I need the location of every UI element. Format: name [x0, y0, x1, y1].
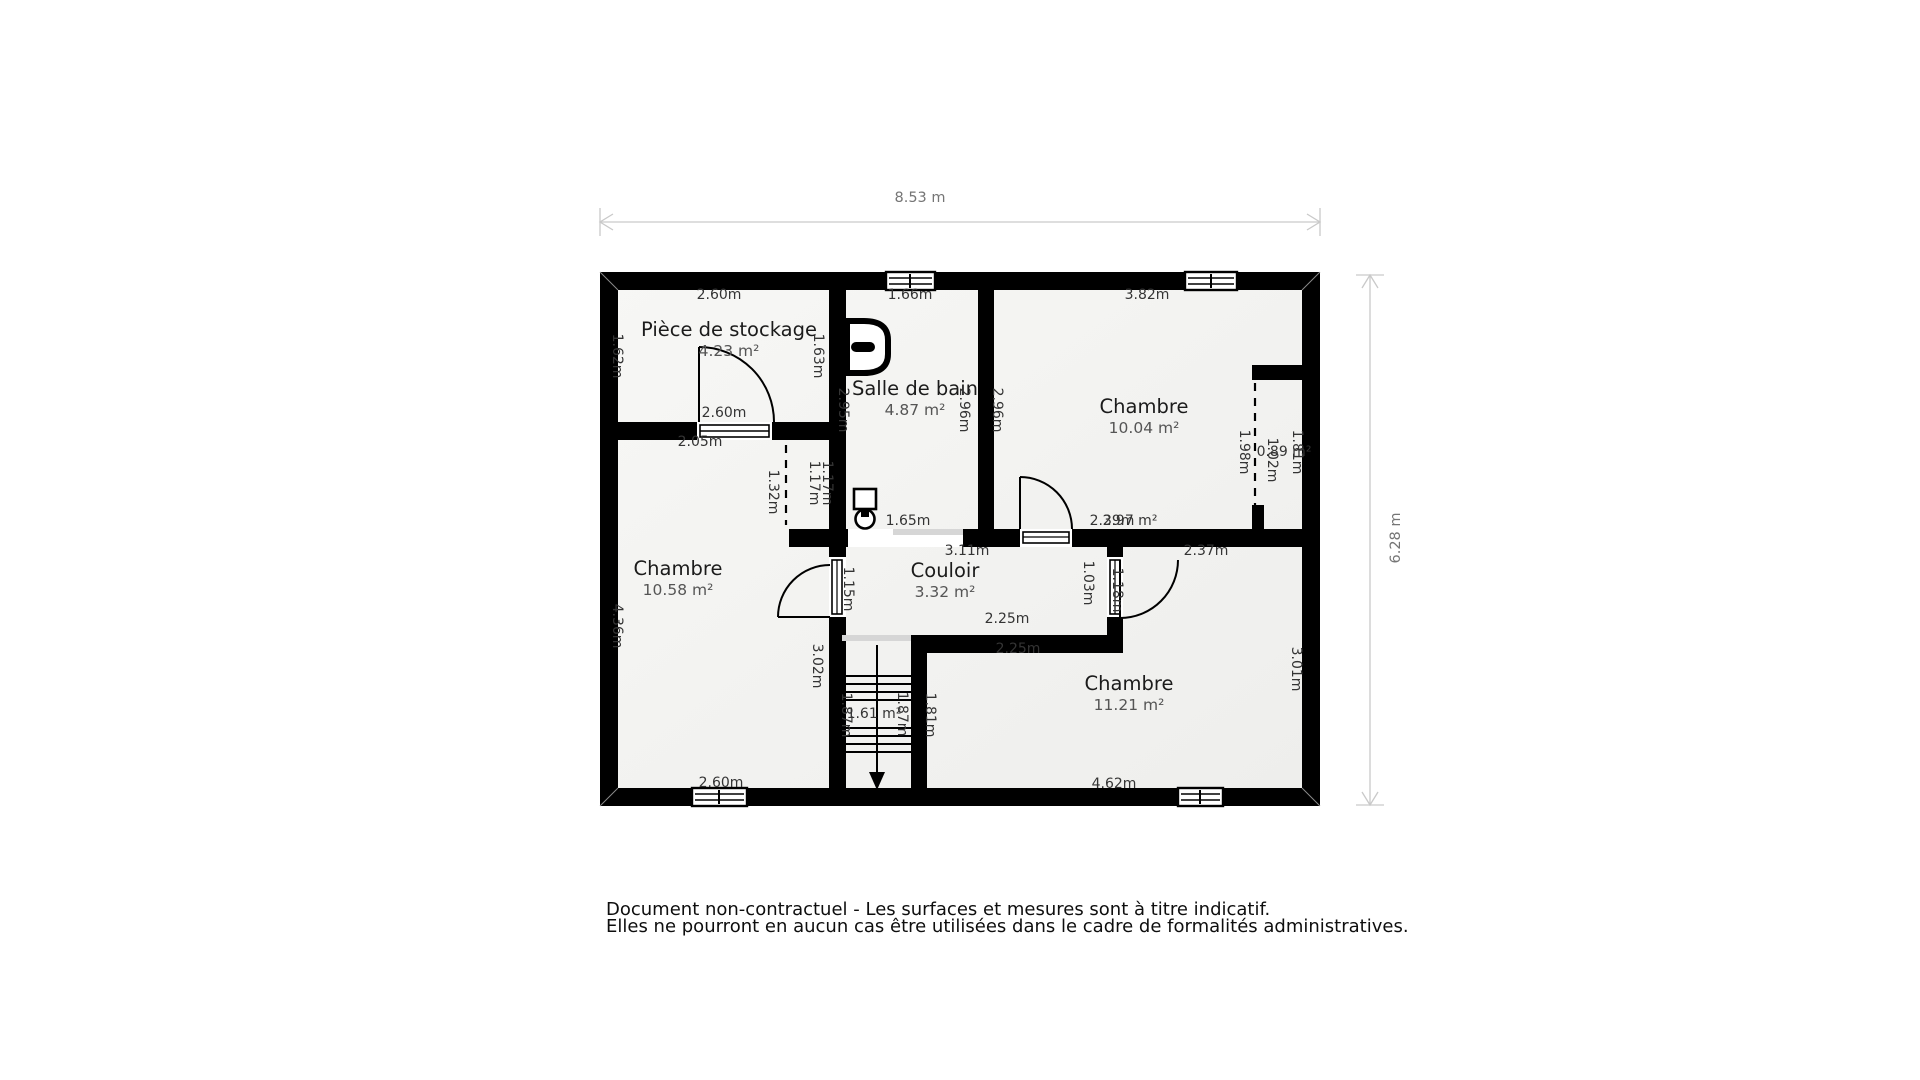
dimension-label: 1.15m: [840, 567, 856, 612]
dimension-label: 1.03m: [1080, 561, 1096, 606]
dimension-line-right: [1356, 275, 1384, 805]
dimension-label: 1.65m: [886, 513, 931, 529]
dimension-label: 2.25m: [985, 611, 1030, 627]
disclaimer: Document non-contractuel - Les surfaces …: [606, 901, 1409, 935]
toilet-icon: [847, 321, 888, 373]
room-area: 10.04 m²: [1100, 420, 1189, 439]
dimension-label: 3.02m: [809, 644, 825, 689]
room-name: Chambre: [634, 557, 723, 581]
room-area: 4.23 m²: [641, 343, 817, 362]
dimension-label: 2.60m: [697, 287, 742, 303]
dimension-label: 4.36m: [609, 604, 625, 649]
stairs-threshold: [842, 635, 911, 641]
dimension-label: 4.62m: [1092, 776, 1137, 792]
room-label: Pièce de stockage4.23 m²: [641, 318, 817, 362]
dimension-label: 2.25m: [996, 641, 1041, 657]
dimension-label: 1.18m: [1109, 568, 1125, 613]
room-area: 10.58 m²: [634, 582, 723, 601]
dimension-label: 2.97 m²: [1103, 513, 1158, 529]
room-name: Pièce de stockage: [641, 318, 817, 342]
dimension-label: 1.66m: [888, 287, 933, 303]
dimension-label: 1.81m: [922, 693, 938, 738]
dimension-label: 3.11m: [945, 543, 990, 559]
overall-dimension-label: 8.53 m: [894, 190, 945, 206]
dimension-label: 2.96m: [989, 388, 1005, 433]
dimension-label: 2.37m: [1184, 543, 1229, 559]
room-label: Chambre10.58 m²: [634, 557, 723, 601]
dimension-label: 2.60m: [702, 405, 747, 421]
dimension-label: 3.82m: [1125, 287, 1170, 303]
room-area: 3.32 m²: [911, 584, 980, 603]
dimension-label: 1.17m: [819, 461, 835, 506]
dimension-label: 2.05m: [678, 434, 723, 450]
dimension-label: 2.96m: [956, 388, 972, 433]
dimension-label: 3.01m: [1288, 647, 1304, 692]
disclaimer-line2: Elles ne pourront en aucun cas être util…: [606, 918, 1409, 935]
dimension-label: 1.87m: [894, 692, 910, 737]
wall-closet-bottom: [1252, 505, 1264, 547]
dimension-label: 1.62m: [609, 334, 625, 379]
passage-threshold: [893, 529, 963, 535]
dimension-label: 1.81m: [1289, 430, 1305, 475]
dimension-label: 2.95m: [835, 388, 851, 433]
sink-icon: [854, 489, 876, 529]
room-label: Chambre11.21 m²: [1085, 672, 1174, 716]
dimension-line-top: [600, 208, 1320, 236]
room-name: Chambre: [1085, 672, 1174, 696]
dimension-label: 1.32m: [765, 470, 781, 515]
dimension-label: 2.60m: [699, 775, 744, 791]
window-bedroom-bottomright: [1178, 788, 1223, 806]
room-name: Chambre: [1100, 395, 1189, 419]
room-area: 11.21 m²: [1085, 697, 1174, 716]
room-label: Couloir3.32 m²: [911, 559, 980, 603]
dimension-label: 1.63m: [810, 334, 826, 379]
dimension-label: 1.98m: [1236, 430, 1252, 475]
floorplan-page: { "overall": { "width_label": "8.53 m", …: [0, 0, 1920, 1080]
room-label: Chambre10.04 m²: [1100, 395, 1189, 439]
wall-closet-top: [1252, 365, 1302, 380]
room-name: Couloir: [911, 559, 980, 583]
window-bedroom-topright: [1185, 272, 1237, 290]
overall-dimension-label: 6.28 m: [1388, 512, 1404, 563]
